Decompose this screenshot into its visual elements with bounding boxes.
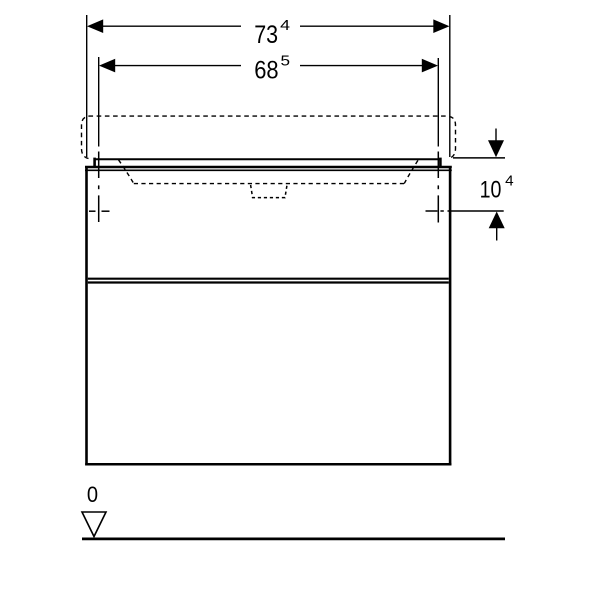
svg-text:10: 10 bbox=[480, 177, 502, 204]
svg-text:5: 5 bbox=[281, 54, 291, 70]
svg-text:0: 0 bbox=[87, 482, 98, 507]
svg-text:4: 4 bbox=[280, 18, 290, 34]
svg-text:73: 73 bbox=[254, 21, 278, 49]
svg-text:4: 4 bbox=[505, 174, 514, 190]
svg-text:68: 68 bbox=[254, 57, 278, 85]
